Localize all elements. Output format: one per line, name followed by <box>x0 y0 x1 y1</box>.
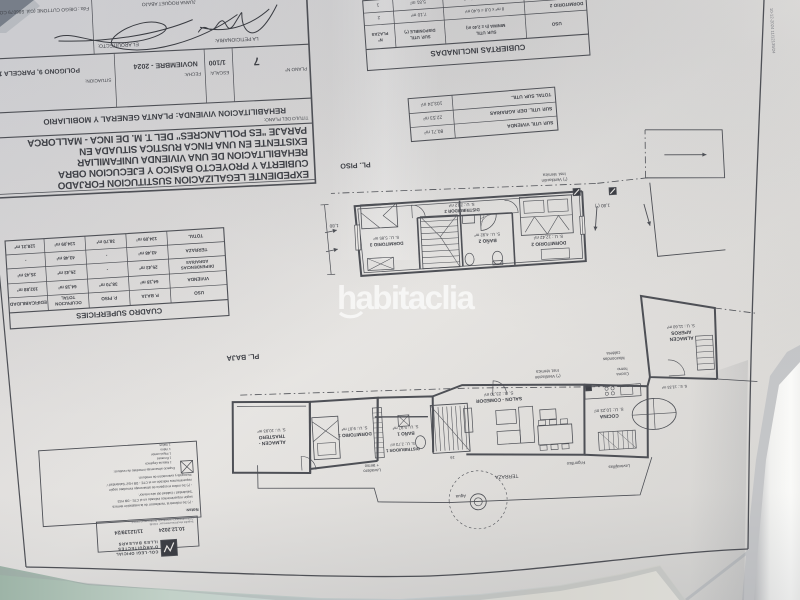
svg-text:habitaclia: habitaclia <box>337 279 475 316</box>
svg-text:USO: USO <box>551 21 562 27</box>
svg-text:PLANO Nº: PLANO Nº <box>285 66 307 72</box>
svg-text:caldera: caldera <box>606 350 621 356</box>
svg-text:FECHA:: FECHA: <box>184 71 201 77</box>
svg-text:TOTAL: TOTAL <box>61 295 76 301</box>
svg-text:P. PISO: P. PISO <box>101 295 118 301</box>
svg-text:Agua: Agua <box>455 494 466 500</box>
svg-text:ESCALA:: ESCALA: <box>210 70 230 76</box>
svg-text:Nº: Nº <box>378 37 383 42</box>
svg-text:5,81 m²: 5,81 m² <box>410 0 426 5</box>
svg-text:PL. PISO: PL. PISO <box>340 160 371 171</box>
svg-text:+ termo: + termo <box>364 463 379 469</box>
svg-text:USO: USO <box>194 290 205 296</box>
svg-text:1 Varios: 1 Varios <box>159 443 171 448</box>
svg-text:1/100: 1/100 <box>208 58 226 66</box>
svg-text:BAÑO 1: BAÑO 1 <box>397 431 415 438</box>
svg-text:TOTAL: TOTAL <box>188 233 203 239</box>
svg-text:1,80: 1,80 <box>329 223 339 228</box>
svg-text:7: 7 <box>253 55 260 67</box>
svg-text:horno: horno <box>616 366 627 372</box>
svg-text:Notas:: Notas: <box>185 507 198 513</box>
